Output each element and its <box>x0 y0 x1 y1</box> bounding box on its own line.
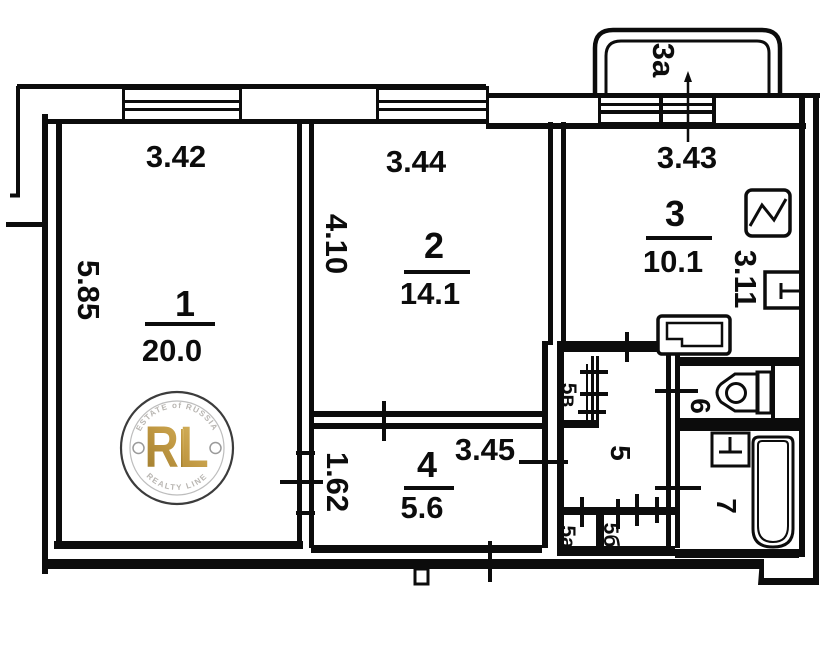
svg-text:3.42: 3.42 <box>146 139 206 174</box>
svg-text:10.1: 10.1 <box>643 244 703 279</box>
svg-text:5.6: 5.6 <box>400 490 443 525</box>
svg-text:3а: 3а <box>646 43 681 78</box>
svg-text:14.1: 14.1 <box>400 276 460 311</box>
svg-text:1: 1 <box>175 283 195 324</box>
svg-text:3: 3 <box>665 193 685 234</box>
svg-text:5б: 5б <box>599 523 622 548</box>
svg-text:3.44: 3.44 <box>386 144 447 179</box>
svg-text:5: 5 <box>605 445 636 461</box>
svg-text:4: 4 <box>417 444 437 485</box>
svg-text:5.85: 5.85 <box>71 260 106 320</box>
svg-text:3.11: 3.11 <box>728 250 763 309</box>
svg-text:RL: RL <box>144 416 209 481</box>
svg-text:3.45: 3.45 <box>455 432 515 467</box>
svg-text:7: 7 <box>711 498 742 514</box>
svg-text:5в: 5в <box>557 383 580 408</box>
svg-text:2: 2 <box>424 225 444 266</box>
svg-text:4.10: 4.10 <box>319 214 354 274</box>
svg-text:1.62: 1.62 <box>320 452 355 512</box>
svg-text:5а: 5а <box>556 525 579 549</box>
svg-text:3.43: 3.43 <box>657 140 717 175</box>
svg-text:20.0: 20.0 <box>142 333 202 368</box>
svg-text:6: 6 <box>685 398 716 414</box>
